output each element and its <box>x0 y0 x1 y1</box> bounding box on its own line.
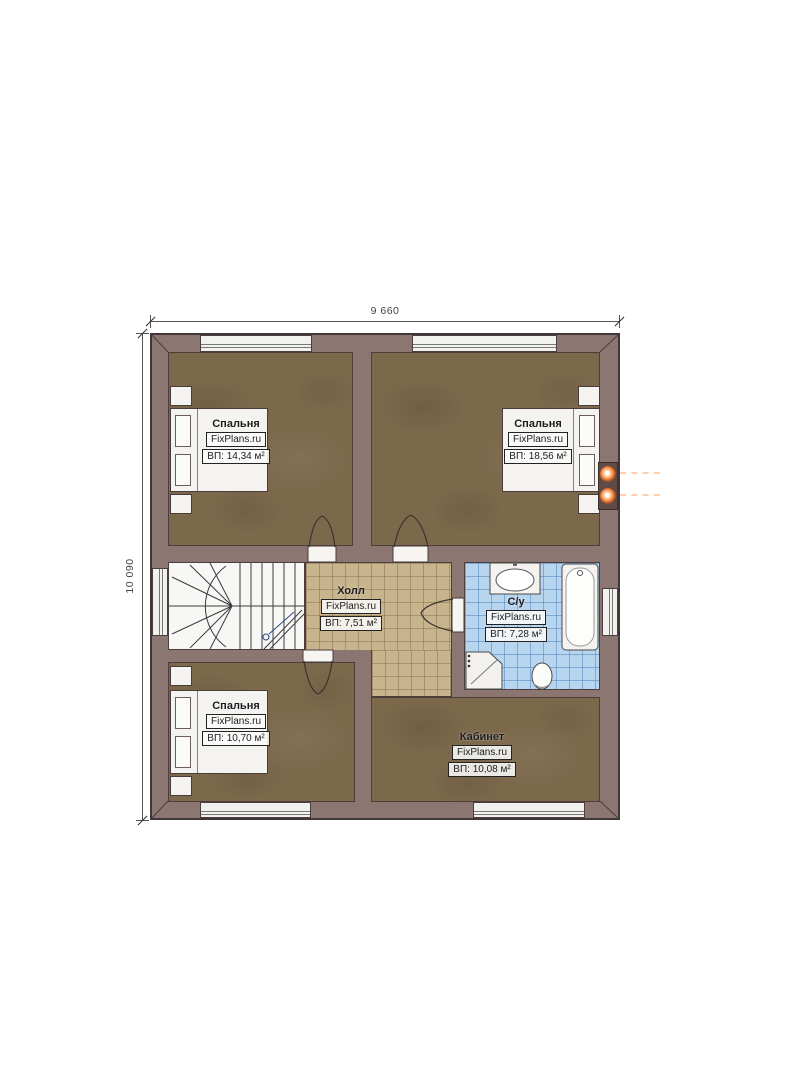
brand-box: FixPlans.ru <box>206 432 266 447</box>
floor-plan-page: 9 660 10 090 <box>0 0 792 1080</box>
window-bottom-right <box>473 802 585 818</box>
window-bottom-left <box>200 802 311 818</box>
flue-glow-icon <box>600 488 616 504</box>
window-top-left <box>200 335 312 352</box>
brand-box: FixPlans.ru <box>508 432 568 447</box>
dimension-height-label: 10 090 <box>124 552 136 600</box>
nightstand <box>578 386 600 406</box>
brand-box: FixPlans.ru <box>321 599 381 614</box>
room-label-hall: Холл FixPlans.ru ВП: 7,51 м² <box>303 585 399 631</box>
area-box: ВП: 18,56 м² <box>504 449 571 464</box>
dimension-height-line <box>142 333 143 820</box>
area-box: ВП: 14,34 м² <box>202 449 269 464</box>
area-box: ВП: 10,08 м² <box>448 762 515 777</box>
flue-dashed-line <box>620 472 660 474</box>
nightstand <box>170 386 192 406</box>
brand-box: FixPlans.ru <box>452 745 512 760</box>
brand-box: FixPlans.ru <box>206 714 266 729</box>
window-left-stairs <box>152 568 168 636</box>
room-name: Кабинет <box>434 731 530 743</box>
area-box: ВП: 10,70 м² <box>202 731 269 746</box>
nightstand <box>578 494 600 514</box>
dimension-width-line <box>150 321 620 322</box>
room-floor-hall-extension <box>371 650 452 697</box>
nightstand <box>170 776 192 796</box>
stairwell-area <box>168 562 305 650</box>
room-label-bedroom-top-right: Спальня FixPlans.ru ВП: 18,56 м² <box>490 418 586 464</box>
room-label-bedroom-bottom-left: Спальня FixPlans.ru ВП: 10,70 м² <box>188 700 284 746</box>
room-name: Спальня <box>188 700 284 712</box>
area-box: ВП: 7,28 м² <box>485 627 547 642</box>
window-top-right <box>412 335 557 352</box>
room-label-office: Кабинет FixPlans.ru ВП: 10,08 м² <box>434 731 530 777</box>
room-label-bedroom-top-left: Спальня FixPlans.ru ВП: 14,34 м² <box>188 418 284 464</box>
flue-dashed-line <box>620 494 660 496</box>
room-label-bathroom: С/у FixPlans.ru ВП: 7,28 м² <box>468 596 564 642</box>
nightstand <box>170 494 192 514</box>
area-box: ВП: 7,51 м² <box>320 616 382 631</box>
flue-glow-icon <box>600 466 616 482</box>
dimension-width-label: 9 660 <box>150 305 620 317</box>
brand-box: FixPlans.ru <box>486 610 546 625</box>
room-name: Спальня <box>490 418 586 430</box>
nightstand <box>170 666 192 686</box>
room-name: Холл <box>303 585 399 597</box>
window-right-bathroom <box>602 588 618 636</box>
room-name: Спальня <box>188 418 284 430</box>
room-name: С/у <box>468 596 564 608</box>
